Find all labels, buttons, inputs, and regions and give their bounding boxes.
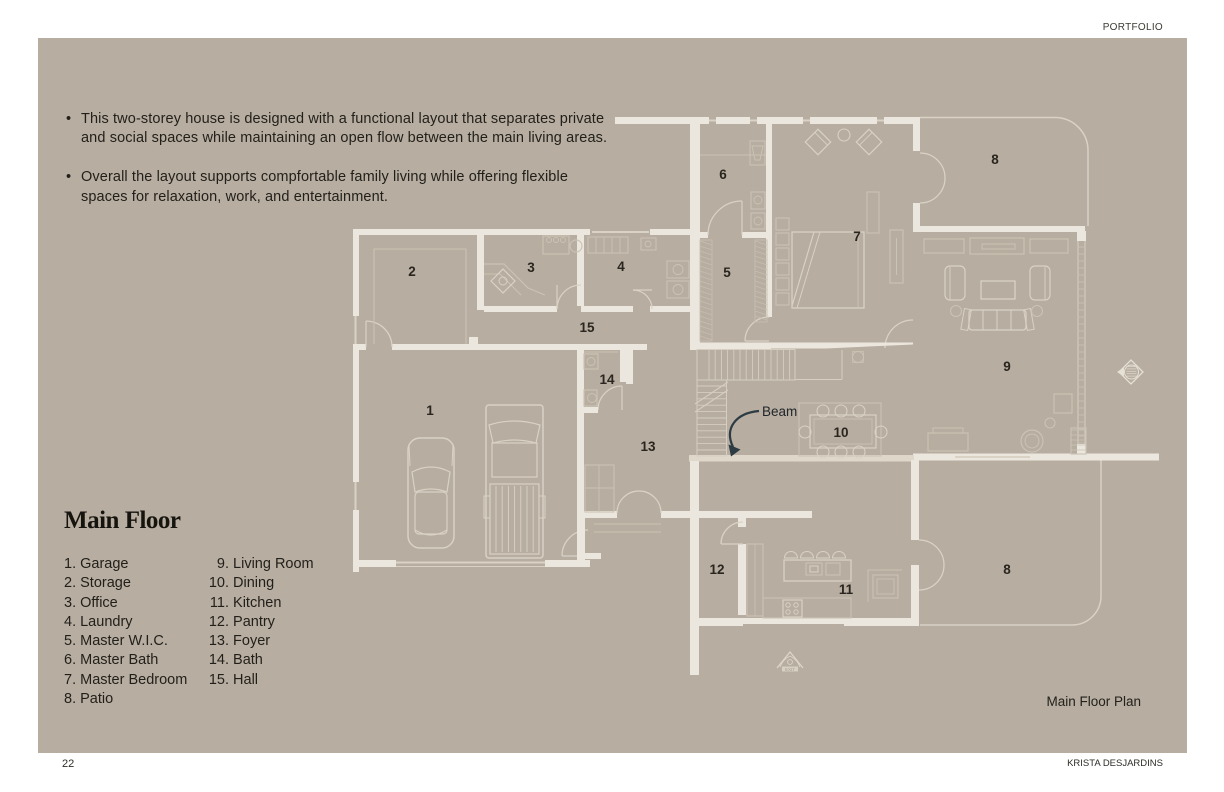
svg-text:13: 13 xyxy=(640,439,656,454)
svg-text:10: 10 xyxy=(833,425,848,440)
svg-text:11: 11 xyxy=(839,582,854,597)
svg-text:1: 1 xyxy=(426,403,434,418)
svg-text:7: 7 xyxy=(853,229,861,244)
svg-text:4: 4 xyxy=(617,259,625,274)
svg-text:15: 15 xyxy=(579,320,595,335)
svg-text:Beam: Beam xyxy=(762,404,797,419)
svg-text:9: 9 xyxy=(1003,359,1011,374)
svg-text:6: 6 xyxy=(719,167,727,182)
svg-text:8: 8 xyxy=(1003,562,1011,577)
svg-text:14: 14 xyxy=(599,372,615,387)
svg-text:EXIT: EXIT xyxy=(785,667,795,672)
svg-text:12: 12 xyxy=(709,562,724,577)
svg-text:2: 2 xyxy=(408,264,416,279)
svg-text:5: 5 xyxy=(723,265,731,280)
svg-text:3: 3 xyxy=(527,260,535,275)
svg-text:8: 8 xyxy=(991,152,999,167)
